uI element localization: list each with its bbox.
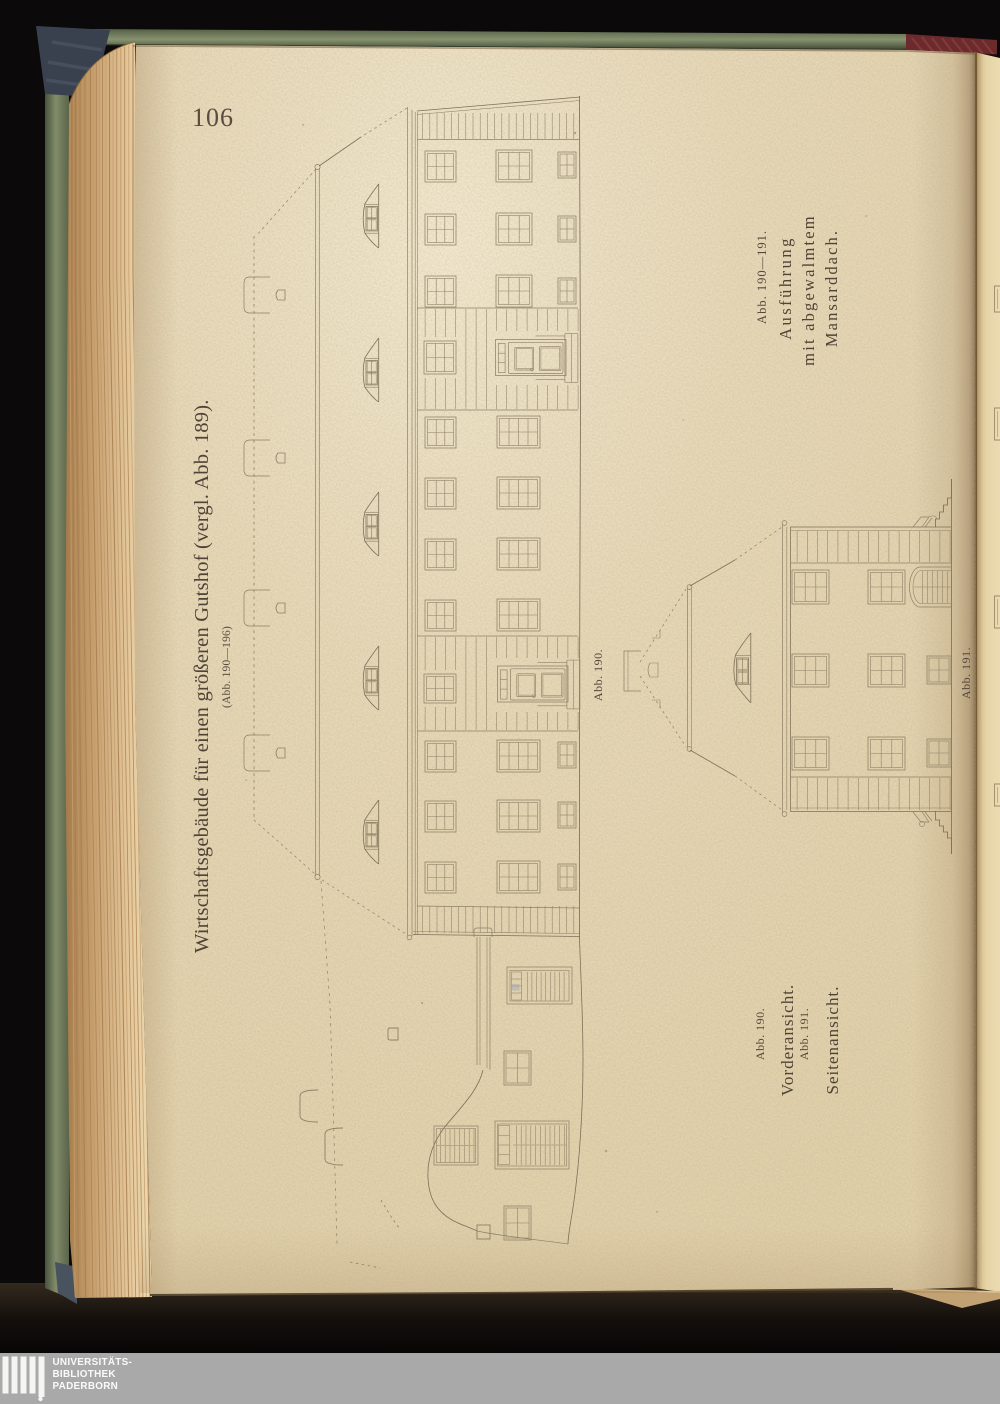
svg-text:(Abb. 190—196): (Abb. 190—196) — [221, 626, 233, 708]
svg-text:106: 106 — [192, 103, 234, 132]
svg-text:PADERBORN: PADERBORN — [53, 1381, 119, 1392]
svg-text:Abb. 191.: Abb. 191. — [797, 1008, 811, 1060]
svg-text:mit abgewalmtem: mit abgewalmtem — [799, 214, 818, 366]
svg-text:BIBLIOTHEK: BIBLIOTHEK — [53, 1369, 117, 1380]
svg-text:Abb. 191.: Abb. 191. — [959, 647, 973, 699]
svg-text:Abb. 190.: Abb. 190. — [591, 649, 605, 701]
svg-text:Mansarddach.: Mansarddach. — [822, 229, 841, 347]
svg-text:Abb. 190—191.: Abb. 190—191. — [755, 230, 769, 324]
svg-text:Seitenansicht.: Seitenansicht. — [823, 986, 842, 1095]
svg-text:Abb. 190.: Abb. 190. — [753, 1008, 767, 1060]
svg-text:Ausführung: Ausführung — [776, 236, 795, 340]
svg-text:Wirtschaftsgebäude für einen g: Wirtschaftsgebäude für einen größeren Gu… — [191, 399, 213, 953]
svg-text:UNIVERSITÄTS-: UNIVERSITÄTS- — [53, 1357, 133, 1368]
svg-text:Vorderansicht.: Vorderansicht. — [778, 984, 797, 1096]
